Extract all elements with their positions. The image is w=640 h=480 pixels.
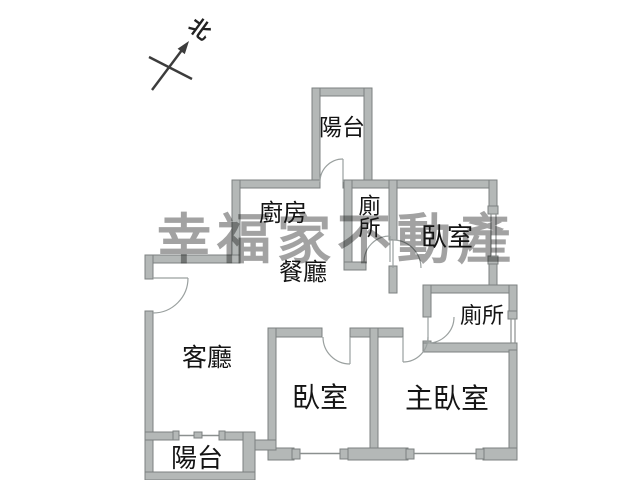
wall (145, 311, 153, 480)
wall (370, 328, 378, 460)
wall (509, 350, 517, 460)
wall (423, 285, 431, 317)
wall (423, 285, 517, 293)
door-arc (323, 337, 350, 364)
wall (483, 448, 517, 460)
wall (348, 448, 408, 460)
wall (255, 440, 276, 450)
compass-cross (149, 57, 192, 79)
room-labels-group: 陽台 廚房 廁所 臥室 餐廳 廁所 客廳 臥室 主臥室 陽台 (171, 115, 504, 473)
door-arc (153, 278, 188, 313)
room-label-dining: 餐廳 (279, 259, 327, 286)
room-label-bedroom-bottom: 臥室 (292, 382, 348, 414)
sliding-door-handle (194, 432, 202, 438)
room-label-bedroom-top: 臥室 (421, 223, 473, 252)
wall (232, 180, 320, 188)
wall (145, 472, 255, 480)
walls-group (145, 88, 517, 480)
floor-plan-svg: 幸福家不動產 陽台 廚房 廁所 臥室 餐廳 廁所 客廳 臥室 主臥室 陽台 北 (0, 0, 640, 480)
room-label-master-bedroom: 主臥室 (405, 383, 489, 415)
wall (145, 255, 153, 279)
room-label-living: 客廳 (182, 344, 232, 372)
north-compass: 北 (149, 13, 215, 90)
sliding-door-cap (219, 431, 225, 440)
floor-plan: 幸福家不動產 陽台 廚房 廁所 臥室 餐廳 廁所 客廳 臥室 主臥室 陽台 北 (0, 0, 640, 480)
window-cap (508, 311, 517, 319)
compass-north-label: 北 (184, 13, 215, 45)
compass-shaft (152, 50, 182, 90)
wall (423, 343, 517, 352)
room-label-balcony-bottom: 陽台 (171, 444, 223, 473)
window-cap (406, 449, 414, 459)
window (511, 319, 515, 343)
wall (364, 88, 372, 184)
door-arc (320, 159, 343, 182)
window-cap (292, 449, 300, 459)
window-cap (340, 449, 348, 459)
room-label-toilet-right: 廁所 (460, 303, 504, 328)
door-arc (428, 317, 454, 343)
window-cap (476, 449, 484, 459)
room-label-balcony-top: 陽台 (319, 115, 365, 140)
wall (312, 88, 372, 96)
room-label-kitchen: 廚房 (259, 200, 307, 227)
room-label-toilet-top: 廁所 (356, 194, 381, 238)
wall (343, 180, 497, 188)
wall (145, 432, 176, 440)
sliding-door-cap (173, 431, 179, 440)
